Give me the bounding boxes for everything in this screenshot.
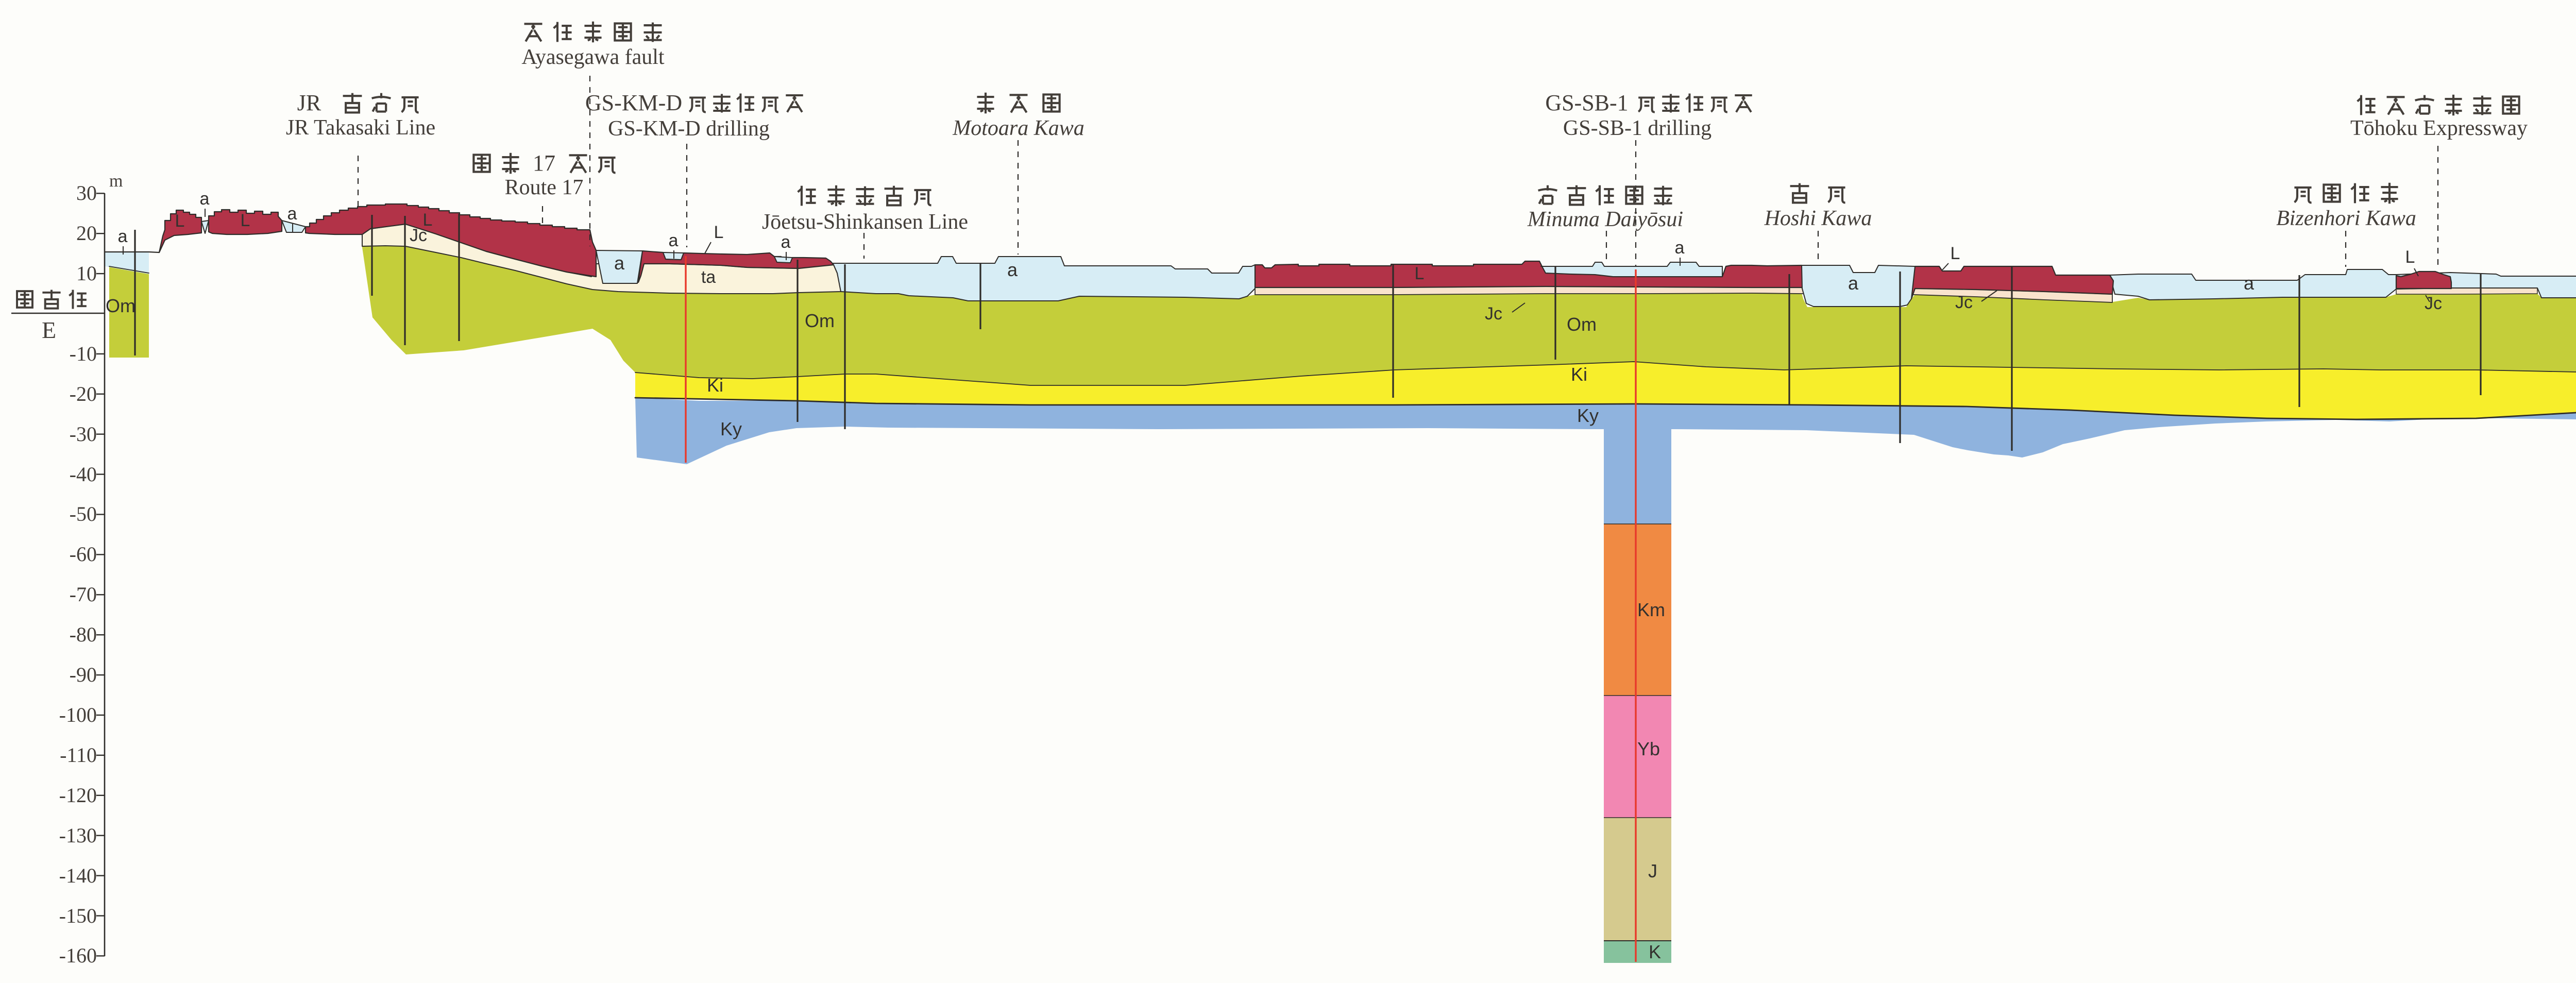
svg-text:-90: -90 xyxy=(70,663,97,686)
svg-text:Ayasegawa fault: Ayasegawa fault xyxy=(521,45,665,69)
svg-text:Jc: Jc xyxy=(1955,293,1973,312)
svg-text:Om: Om xyxy=(805,310,835,331)
svg-text:JR: JR xyxy=(297,90,321,115)
svg-text:-130: -130 xyxy=(59,824,97,847)
svg-text:a: a xyxy=(781,232,791,252)
svg-text:-140: -140 xyxy=(59,864,97,887)
svg-text:m: m xyxy=(109,172,123,191)
svg-text:-60: -60 xyxy=(70,543,97,566)
svg-text:GS-SB-1: GS-SB-1 xyxy=(1545,90,1628,115)
svg-text:Om: Om xyxy=(106,295,135,316)
svg-text:Ki: Ki xyxy=(1571,364,1587,385)
svg-text:a: a xyxy=(1007,259,1018,280)
svg-text:17: 17 xyxy=(533,150,555,176)
svg-text:-40: -40 xyxy=(70,463,97,486)
svg-text:L: L xyxy=(1951,244,1960,263)
svg-text:K: K xyxy=(1649,941,1661,962)
svg-text:-120: -120 xyxy=(59,784,97,807)
svg-text:-80: -80 xyxy=(70,623,97,646)
svg-text:Jōetsu-Shinkansen Line: Jōetsu-Shinkansen Line xyxy=(762,210,968,234)
svg-text:GS-SB-1 drilling: GS-SB-1 drilling xyxy=(1563,116,1711,140)
svg-text:20: 20 xyxy=(76,222,97,245)
svg-text:-20: -20 xyxy=(70,382,97,405)
svg-text:Hoshi Kawa: Hoshi Kawa xyxy=(1764,207,1872,230)
svg-text:a: a xyxy=(1675,238,1685,258)
svg-text:Route 17: Route 17 xyxy=(505,176,584,199)
svg-text:Motoara Kawa: Motoara Kawa xyxy=(952,116,1084,140)
svg-text:-100: -100 xyxy=(59,703,97,726)
svg-text:10: 10 xyxy=(76,262,97,285)
svg-text:Bizenhori Kawa: Bizenhori Kawa xyxy=(2276,207,2416,230)
svg-text:Ki: Ki xyxy=(707,375,723,396)
svg-text:-160: -160 xyxy=(59,944,97,967)
svg-text:JR Takasaki Line: JR Takasaki Line xyxy=(286,116,435,140)
svg-text:a: a xyxy=(287,204,297,224)
svg-text:-150: -150 xyxy=(59,904,97,927)
svg-text:Om: Om xyxy=(1567,314,1597,335)
svg-text:Jc: Jc xyxy=(2425,294,2442,313)
svg-text:a: a xyxy=(2244,273,2255,294)
svg-text:L: L xyxy=(175,211,185,231)
svg-text:a: a xyxy=(669,231,679,250)
svg-text:Jc: Jc xyxy=(410,226,427,245)
svg-text:a: a xyxy=(118,227,128,246)
svg-text:a: a xyxy=(200,189,210,209)
svg-text:Minuma Daiyōsui: Minuma Daiyōsui xyxy=(1527,208,1683,231)
svg-text:-30: -30 xyxy=(70,422,97,446)
svg-text:a: a xyxy=(1848,273,1859,294)
svg-text:-110: -110 xyxy=(60,743,97,767)
svg-text:a: a xyxy=(614,252,625,274)
svg-text:L: L xyxy=(241,211,250,230)
svg-text:L: L xyxy=(2405,247,2415,267)
svg-text:-50: -50 xyxy=(70,502,97,526)
svg-text:ta: ta xyxy=(701,267,716,287)
svg-text:L: L xyxy=(714,223,724,242)
svg-text:Km: Km xyxy=(1637,599,1665,620)
svg-text:E: E xyxy=(42,317,56,343)
svg-text:Yb: Yb xyxy=(1637,738,1660,759)
svg-text:Ky: Ky xyxy=(1577,405,1599,426)
svg-text:L: L xyxy=(1415,264,1425,283)
svg-text:Jc: Jc xyxy=(1485,304,1502,324)
svg-text:Ky: Ky xyxy=(720,418,742,439)
svg-text:-10: -10 xyxy=(70,342,97,365)
svg-text:-70: -70 xyxy=(70,583,97,606)
svg-text:Tōhoku Expressway: Tōhoku Expressway xyxy=(2350,116,2528,140)
svg-text:GS-KM-D drilling: GS-KM-D drilling xyxy=(608,117,770,141)
svg-text:J: J xyxy=(1648,860,1657,882)
svg-text:30: 30 xyxy=(76,181,97,205)
svg-text:GS-KM-D: GS-KM-D xyxy=(585,90,682,115)
